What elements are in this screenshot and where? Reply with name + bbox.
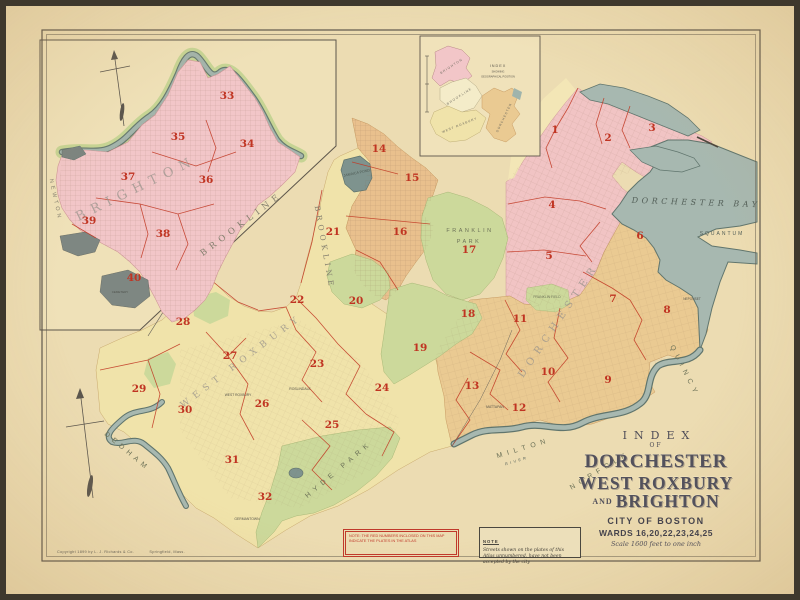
black-note-box: NOTE Streets shown on the plates of this…	[479, 527, 581, 558]
copyright-right: Springfield, Mass.	[149, 550, 185, 554]
black-note-body: Streets shown on the plates of this Atla…	[483, 548, 577, 567]
title-of: OF	[570, 443, 742, 449]
title-dorchester: DORCHESTER	[570, 452, 742, 472]
copyright-left: Copyright 1899 by L. J. Richards & Co.	[57, 550, 134, 554]
title-wards: WARDS 16,20,22,23,24,25	[570, 529, 742, 538]
red-note-box: Note: the red numbers inclosed on this m…	[345, 531, 457, 555]
black-note-title: NOTE	[483, 539, 499, 545]
title-block: INDEX OF DORCHESTER WEST ROXBURY ANDBRIG…	[570, 430, 742, 548]
title-city: CITY OF BOSTON	[570, 517, 742, 526]
title-west-roxbury: WEST ROXBURY	[570, 474, 742, 492]
title-scale: Scale 1600 feet to one inch	[570, 541, 742, 548]
title-brighton: BRIGHTON	[616, 491, 720, 511]
title-brighton-line: ANDBRIGHTON	[570, 492, 742, 512]
title-and: AND	[592, 497, 612, 506]
title-index: INDEX	[570, 430, 742, 442]
copyright-line: Copyright 1899 by L. J. Richards & Co. S…	[57, 550, 317, 554]
atlas-index-map-sheet: BRIGHTONBROOKLINEBROOKLINENEWTONJAMAICA …	[0, 0, 800, 600]
